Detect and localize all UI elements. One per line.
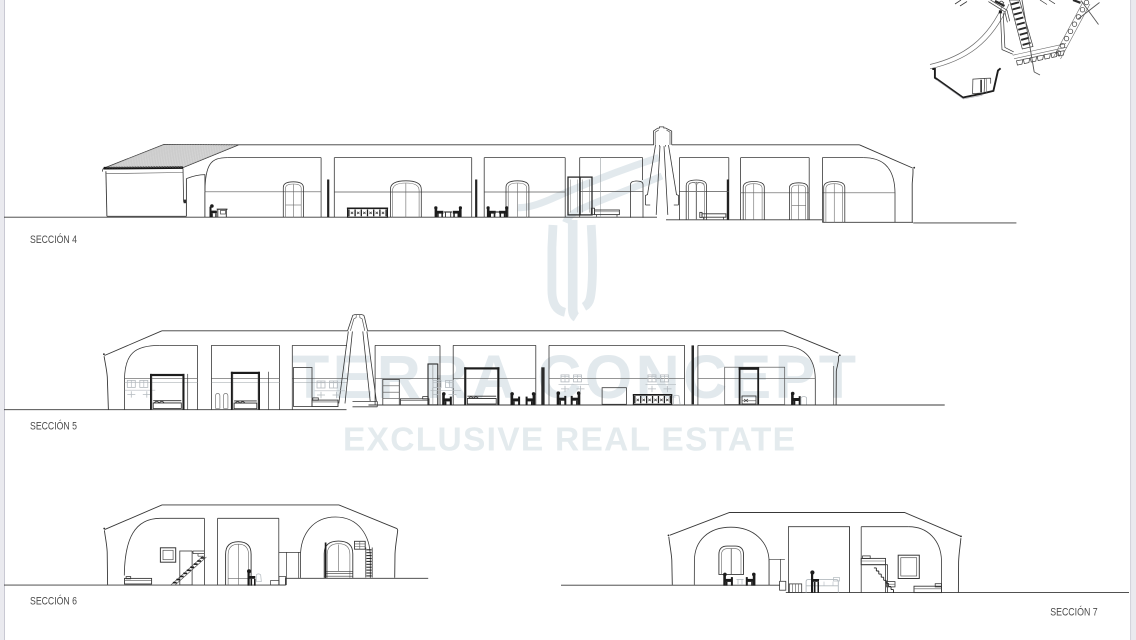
- svg-text:SECCIÓN 4: SECCIÓN 4: [30, 233, 77, 246]
- svg-text:EXCLUSIVE REAL ESTATE: EXCLUSIVE REAL ESTATE: [343, 422, 795, 459]
- svg-text:SECCIÓN 5: SECCIÓN 5: [30, 420, 77, 433]
- svg-text:SECCIÓN 7: SECCIÓN 7: [1050, 605, 1098, 618]
- svg-text:SECCIÓN 6: SECCIÓN 6: [30, 595, 77, 608]
